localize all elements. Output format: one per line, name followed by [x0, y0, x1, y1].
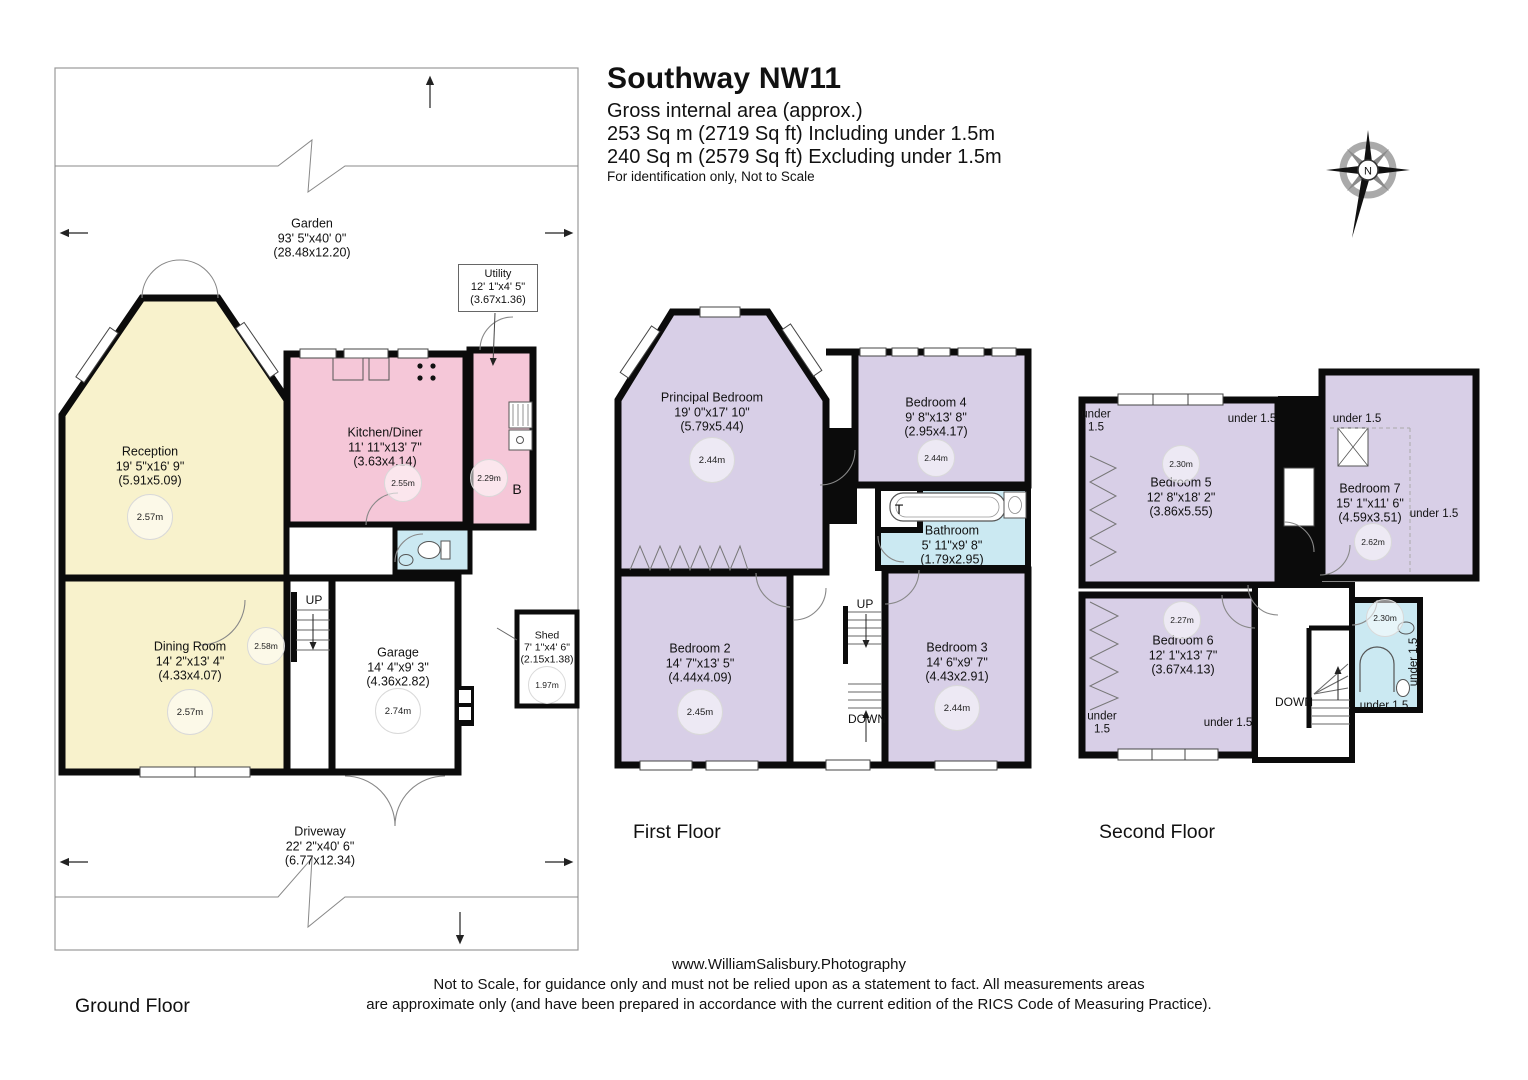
ceiling-height-reception: 2.57m: [127, 494, 173, 540]
floorplan-page: Southway NW11 Gross internal area (appro…: [0, 0, 1528, 1080]
ceiling-height-bedroom3: 2.44m: [934, 685, 980, 731]
ceiling-height-bedroom7: 2.62m: [1354, 523, 1392, 561]
ceiling-height-garage: 2.74m: [375, 688, 421, 734]
hall-shape: [287, 525, 395, 578]
under-eaves-bathroom2-bottom: under 1.5: [1360, 700, 1409, 712]
reception-label: Reception 19' 5"x16' 9" (5.91x5.09): [116, 444, 185, 488]
second-landing-shape: [1255, 585, 1352, 760]
identification-note: For identification only, Not to Scale: [607, 170, 1002, 184]
ceiling-height-kitchen: 2.55m: [384, 464, 422, 502]
under-eaves-bedroom5-top: under 1.5: [1228, 413, 1277, 425]
title-block: Southway NW11 Gross internal area (appro…: [607, 64, 1002, 184]
ceiling-height-shed: 1.97m: [528, 666, 566, 704]
bath-fixtures: [890, 492, 1026, 521]
under-eaves-bedroom7-top: under 1.5: [1333, 413, 1382, 425]
room-bedroom7-shape: [1322, 372, 1476, 578]
bedroom2-label: Bedroom 2 14' 7"x13' 5" (4.44x4.09): [666, 641, 735, 685]
compass-north-icon: N: [1322, 126, 1414, 249]
ceiling-height-bathroom2: 2.30m: [1366, 599, 1404, 637]
under-eaves-bedroom7-right: under 1.5: [1410, 508, 1459, 520]
stairs-down-label-second: DOWN: [1275, 695, 1313, 709]
boiler-unit: [509, 402, 532, 450]
toilet-label: T: [895, 501, 904, 517]
bedroom7-label: Bedroom 7 15' 1"x11' 6" (4.59x3.51): [1336, 481, 1404, 525]
bedroom4-label: Bedroom 4 9' 8"x13' 8" (2.95x4.17): [904, 395, 967, 439]
under-eaves-bedroom6-right: under 1.5: [1204, 717, 1253, 729]
ceiling-height-hall: 2.58m: [247, 627, 285, 665]
disclaimer-line1: Not to Scale, for guidance only and must…: [264, 975, 1314, 995]
under-eaves-bedroom6-left: under 1.5: [1087, 710, 1116, 735]
under-eaves-bathroom2-right: under 1.5: [1408, 638, 1420, 687]
ceiling-height-bedroom5: 2.30m: [1162, 445, 1200, 483]
page-title: Southway NW11: [607, 64, 1002, 94]
garage-side-window: [456, 686, 474, 726]
second-mid-notch: [1284, 468, 1314, 526]
boiler-label: B: [512, 481, 521, 497]
ceiling-height-bedroom4: 2.44m: [917, 439, 955, 477]
first-floor-title: First Floor: [633, 821, 721, 844]
ceiling-height-dining: 2.57m: [167, 689, 213, 735]
ceiling-height-bedroom2: 2.45m: [677, 689, 723, 735]
utility-callout: Utility 12' 1"x4' 5" (3.67x1.36): [458, 264, 538, 312]
website-credit: www.WilliamSalisbury.Photography: [264, 955, 1314, 975]
area-excluding-line: 240 Sq m (2579 Sq ft) Excluding under 1.…: [607, 147, 1002, 167]
driveway-label: Driveway 22' 2"x40' 6" (6.77x12.34): [285, 824, 355, 868]
skylight: [1338, 428, 1368, 466]
bathroom1-label: Bathroom 5' 11"x9' 8" (1.79x2.95): [920, 523, 983, 567]
shed-door-line: [497, 628, 517, 640]
area-including-line: 253 Sq m (2719 Sq ft) Including under 1.…: [607, 124, 1002, 144]
bedroom6-label: Bedroom 6 12' 1"x13' 7" (3.67x4.13): [1149, 633, 1218, 677]
stairs-down-label-first: DOWN: [848, 712, 886, 726]
ceiling-height-bedroom6: 2.27m: [1163, 601, 1201, 639]
ground-floor-title: Ground Floor: [75, 995, 190, 1018]
under-eaves-bedroom5-left: under 1.5: [1081, 408, 1110, 433]
principal-bedroom-label: Principal Bedroom 19' 0"x17' 10" (5.79x5…: [661, 390, 763, 434]
bedroom3-label: Bedroom 3 14' 6"x9' 7" (4.43x2.91): [925, 640, 988, 684]
shed-label: Shed 7' 1"x4' 6" (2.15x1.38): [520, 630, 573, 665]
gross-area-label: Gross internal area (approx.): [607, 101, 1002, 121]
chimney-block: [824, 428, 857, 524]
footer-block: www.WilliamSalisbury.Photography Not to …: [264, 955, 1314, 1015]
driveway-break-line: [55, 858, 578, 927]
ceiling-height-utility: 2.29m: [470, 459, 508, 497]
garden-break-line: [55, 140, 578, 192]
stairs-up-label-ground: UP: [306, 593, 323, 607]
garage-label: Garage 14' 4"x9' 3" (4.36x2.82): [366, 645, 429, 689]
garden-label: Garden 93' 5"x40' 0" (28.48x12.20): [273, 216, 350, 260]
ceiling-height-principal: 2.44m: [689, 437, 735, 483]
dining-room-label: Dining Room 14' 2"x13' 4" (4.33x4.07): [154, 639, 226, 683]
second-floor-title: Second Floor: [1099, 821, 1215, 844]
disclaimer-line2: are approximate only (and have been prep…: [264, 995, 1314, 1015]
stairs-up-label-first: UP: [857, 597, 874, 611]
svg-text:N: N: [1364, 166, 1372, 178]
kitchen-label: Kitchen/Diner 11' 11"x13' 7" (3.63x4.14): [347, 425, 422, 469]
